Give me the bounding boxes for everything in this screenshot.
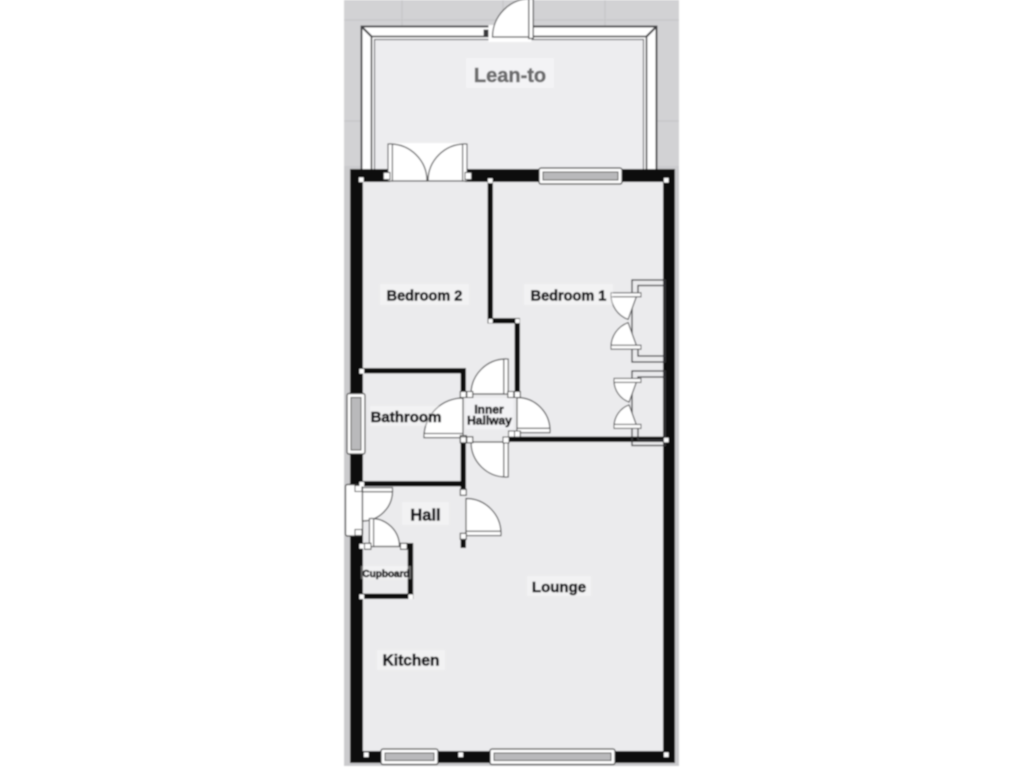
svg-text:Hall: Hall bbox=[410, 507, 440, 525]
svg-text:Kitchen: Kitchen bbox=[383, 653, 440, 670]
svg-text:Lounge: Lounge bbox=[532, 579, 586, 596]
svg-text:Cupboard: Cupboard bbox=[362, 569, 409, 580]
svg-text:Hallway: Hallway bbox=[467, 414, 512, 428]
svg-text:Bedroom 1: Bedroom 1 bbox=[531, 289, 607, 305]
svg-text:Bedroom 2: Bedroom 2 bbox=[387, 289, 463, 305]
svg-text:Bathroom: Bathroom bbox=[371, 409, 442, 426]
